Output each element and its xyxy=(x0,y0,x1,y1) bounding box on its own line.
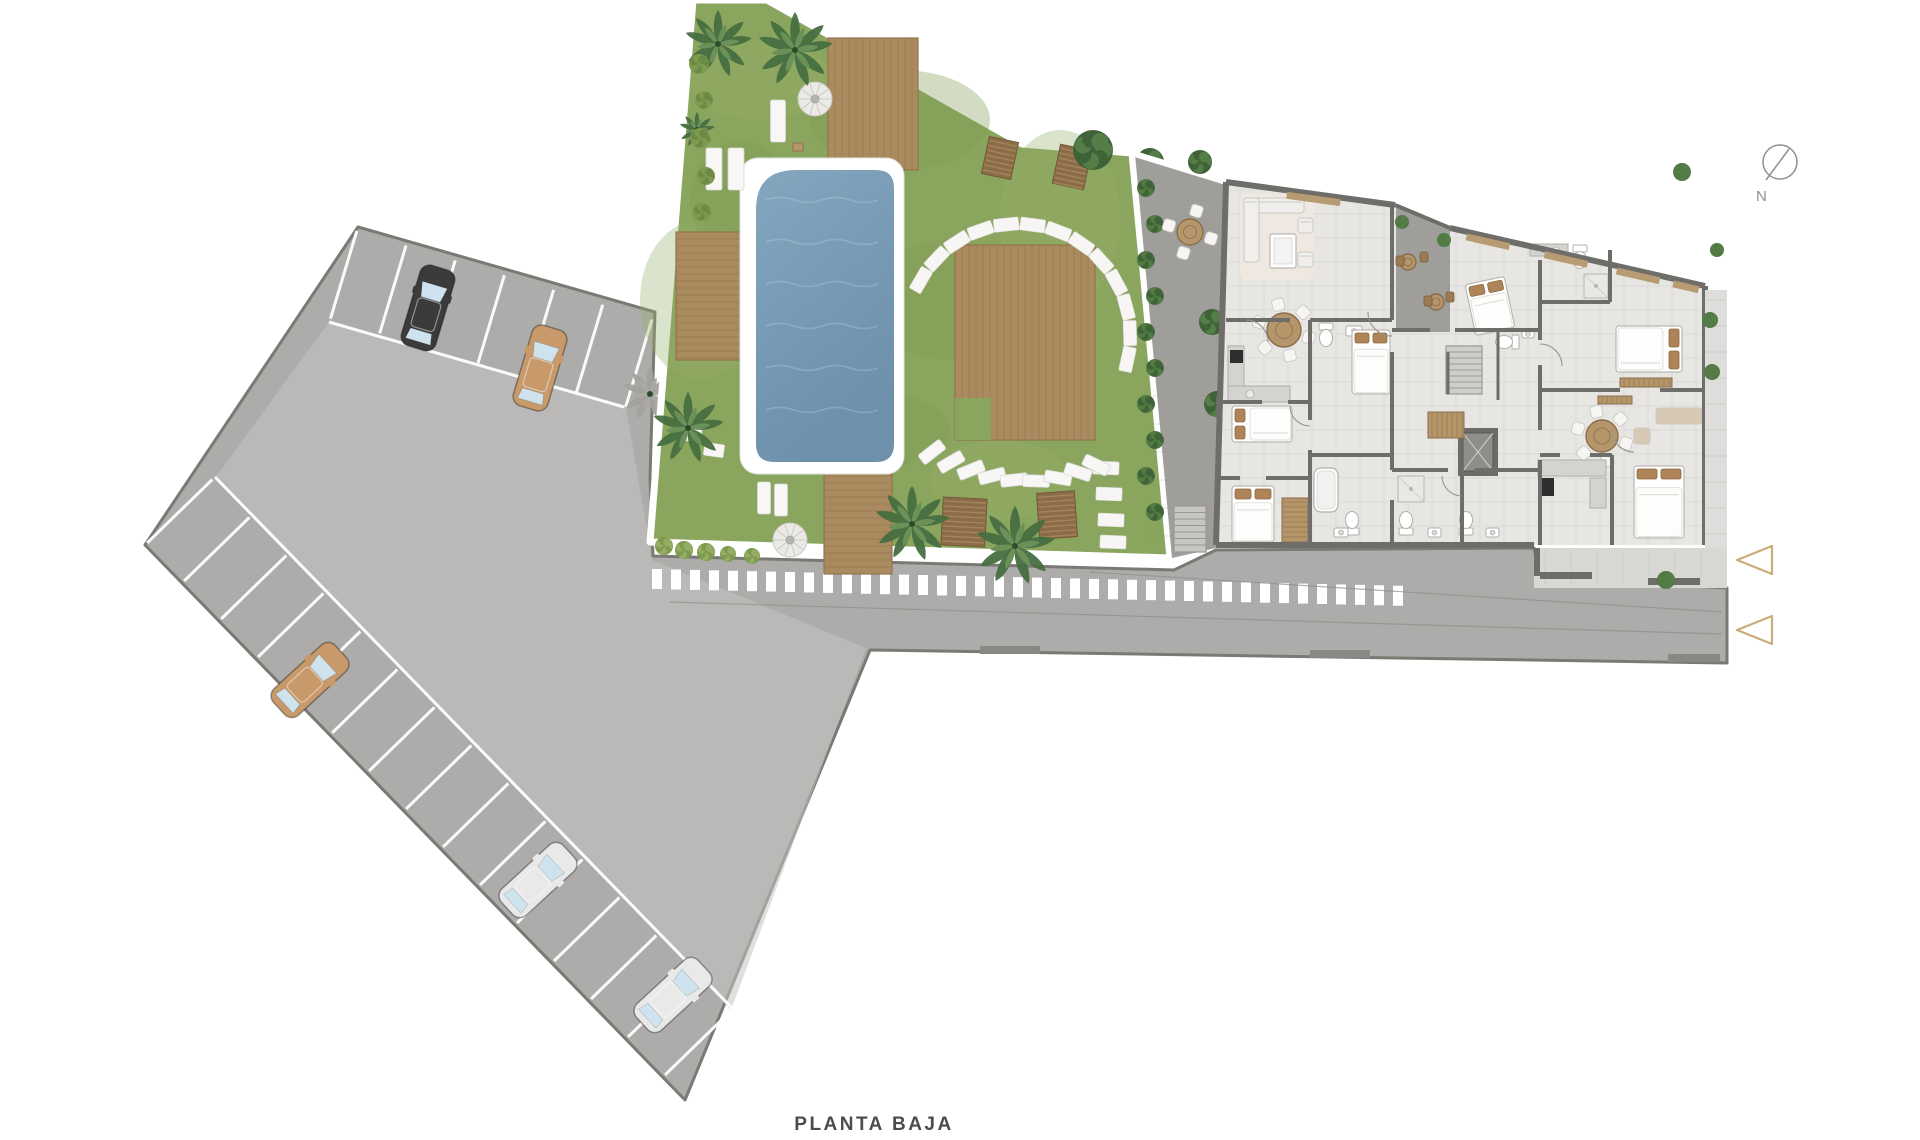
bench-deck-1 xyxy=(941,497,987,547)
courtyard-plant-icon xyxy=(1395,215,1409,229)
hedge-bush-icon xyxy=(1137,179,1155,197)
kitchen-counter xyxy=(1228,386,1290,402)
deck-pool-walkway xyxy=(824,462,892,574)
building-stairs xyxy=(1446,346,1482,394)
sink-icon xyxy=(1334,528,1348,537)
shower-icon xyxy=(1584,274,1608,298)
bush-icon xyxy=(675,541,693,559)
hedge-bush-icon xyxy=(1146,359,1164,377)
compass-label: N xyxy=(1756,188,1767,205)
sofa-brown xyxy=(1656,408,1702,424)
floor-plan-page: N PLANTA BAJA xyxy=(0,0,1920,1140)
garden-stairs xyxy=(1174,506,1206,552)
bush-icon xyxy=(744,548,760,564)
north-compass-icon: N xyxy=(1756,145,1797,205)
garden xyxy=(640,0,1170,574)
tree-icon xyxy=(1073,130,1113,170)
hedge-bush-icon xyxy=(1137,323,1155,341)
toilet-icon xyxy=(1319,323,1333,347)
terrace-plant-icon xyxy=(1704,364,1720,380)
nav-arrow-icon-1[interactable] xyxy=(1737,546,1772,574)
bush-icon xyxy=(689,54,709,74)
bench-deck-2 xyxy=(1036,491,1077,540)
hedge-bush-icon xyxy=(1137,251,1155,269)
hedge-bush-icon xyxy=(1137,467,1155,485)
kitchen-counter xyxy=(1538,460,1606,476)
hedge-bush-icon xyxy=(1146,503,1164,521)
hedge-bush-icon xyxy=(1146,431,1164,449)
courtyard-plant-icon xyxy=(1437,233,1451,247)
bush-icon xyxy=(695,91,713,109)
bush-icon xyxy=(690,128,710,148)
toilet-icon xyxy=(1399,512,1413,536)
terrace-plant-icon xyxy=(1657,571,1675,589)
armchair xyxy=(1634,428,1650,444)
hedge-bush-icon xyxy=(1146,287,1164,305)
hedge-bush-icon xyxy=(1137,395,1155,413)
hedge-bush-icon xyxy=(1146,215,1164,233)
sink-icon xyxy=(1428,528,1441,537)
parasol-bottom xyxy=(773,523,807,557)
bed-double xyxy=(1232,406,1292,442)
terrace-plant-icon xyxy=(1673,163,1691,181)
nav-arrows[interactable] xyxy=(1737,546,1772,644)
bed-double xyxy=(1634,466,1684,538)
terrace-plant-icon xyxy=(1702,312,1718,328)
nav-arrow-icon-2[interactable] xyxy=(1737,616,1772,644)
sink-icon xyxy=(1486,528,1499,537)
parasol-top xyxy=(798,82,832,116)
armchair xyxy=(1298,218,1313,233)
sofa-white xyxy=(1244,198,1259,262)
bed-double xyxy=(1352,330,1390,394)
bush-icon xyxy=(655,537,673,555)
bathtub-icon xyxy=(1314,468,1338,512)
building xyxy=(1214,180,1706,546)
wardrobe-icon xyxy=(1620,378,1672,387)
site-plan-drawing: N xyxy=(0,0,1920,1140)
bush-icon xyxy=(697,543,715,561)
bed-double xyxy=(1616,326,1682,372)
bush-icon xyxy=(697,167,715,185)
wardrobe-icon xyxy=(1428,412,1464,438)
bush-icon xyxy=(693,203,711,221)
terrace-plant-icon xyxy=(1710,243,1724,257)
wardrobe-icon xyxy=(1282,498,1308,542)
tree-icon xyxy=(1188,150,1212,174)
armchair xyxy=(1298,252,1313,267)
kitchen-counter xyxy=(1590,478,1606,508)
deck-right xyxy=(955,245,1095,440)
swimming-pool xyxy=(740,158,904,474)
deck-top xyxy=(828,38,918,170)
wardrobe-icon xyxy=(1598,396,1632,404)
floor-title: PLANTA BAJA xyxy=(769,1114,979,1136)
bush-icon xyxy=(720,546,736,562)
bed-double xyxy=(1232,486,1274,542)
shower-icon xyxy=(1398,476,1424,502)
